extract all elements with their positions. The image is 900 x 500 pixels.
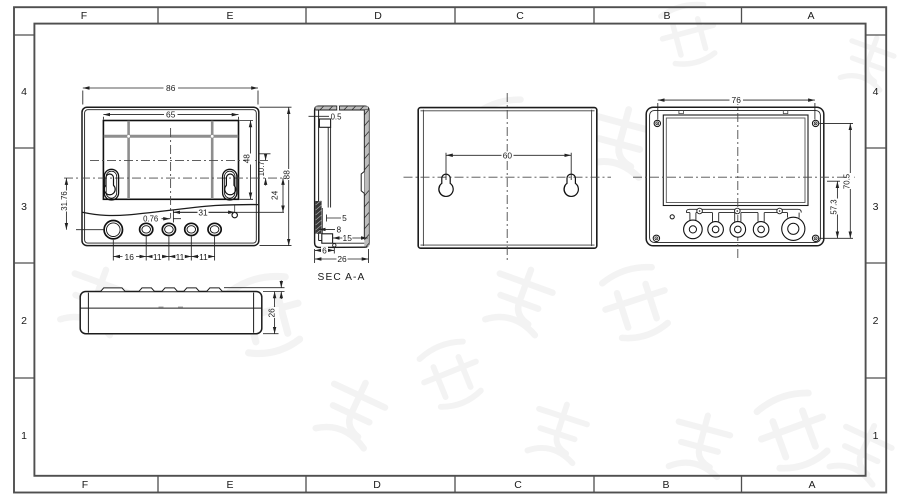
svg-text:C: C: [516, 10, 524, 22]
svg-text:A: A: [807, 10, 814, 22]
svg-text:16: 16: [125, 252, 135, 262]
svg-text:57.3: 57.3: [830, 199, 839, 214]
svg-text:60: 60: [503, 151, 513, 161]
svg-text:A: A: [808, 479, 815, 491]
svg-text:SEC A-A: SEC A-A: [318, 272, 366, 283]
svg-text:15: 15: [343, 233, 353, 243]
svg-text:E: E: [226, 479, 233, 491]
svg-text:2: 2: [873, 315, 879, 327]
svg-text:65: 65: [166, 109, 176, 119]
svg-text:F: F: [82, 479, 88, 491]
svg-text:4: 4: [873, 86, 879, 98]
svg-text:88: 88: [281, 170, 291, 180]
svg-text:5: 5: [342, 213, 347, 223]
svg-text:0.76: 0.76: [143, 215, 158, 224]
svg-text:26: 26: [337, 254, 347, 264]
svg-text:3: 3: [21, 201, 27, 213]
svg-text:8: 8: [336, 225, 341, 235]
svg-text:76: 76: [732, 95, 742, 105]
svg-text:4: 4: [21, 86, 27, 98]
svg-text:0.5: 0.5: [331, 113, 343, 122]
svg-text:B: B: [663, 10, 670, 22]
svg-text:6: 6: [322, 246, 327, 256]
svg-text:1: 1: [21, 430, 27, 442]
svg-text:10.7: 10.7: [257, 161, 266, 176]
svg-text:31: 31: [198, 208, 208, 218]
svg-text:70.5: 70.5: [843, 173, 852, 189]
svg-text:D: D: [373, 479, 381, 491]
svg-text:F: F: [81, 10, 87, 22]
svg-text:1: 1: [873, 430, 879, 442]
svg-text:11: 11: [176, 252, 185, 262]
svg-text:31.76: 31.76: [60, 191, 69, 211]
svg-text:C: C: [514, 479, 522, 491]
svg-text:E: E: [226, 10, 233, 22]
svg-text:48: 48: [242, 154, 252, 164]
svg-text:B: B: [662, 479, 669, 491]
svg-text:2: 2: [21, 315, 27, 327]
svg-text:3: 3: [873, 201, 879, 213]
svg-text:26: 26: [267, 308, 277, 318]
svg-text:D: D: [374, 10, 382, 22]
svg-text:11: 11: [153, 252, 162, 262]
svg-text:11: 11: [199, 252, 208, 262]
svg-text:24: 24: [269, 190, 279, 200]
svg-text:86: 86: [166, 83, 176, 93]
